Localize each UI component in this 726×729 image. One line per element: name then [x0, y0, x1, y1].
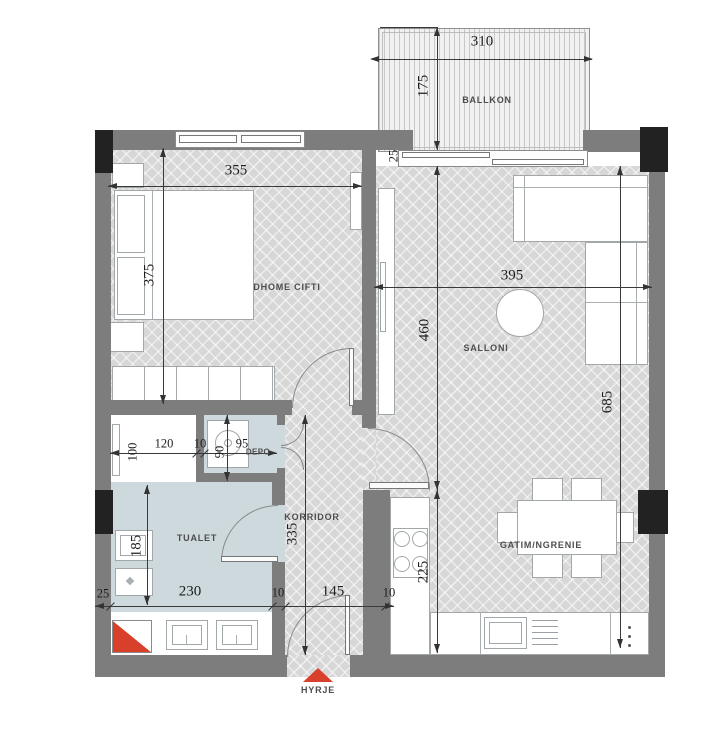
dim-arrow	[110, 450, 119, 456]
dim-arrow	[95, 603, 104, 609]
dim-bottom-gap2: 10	[383, 586, 396, 601]
dim-toilet-depth: 185	[129, 535, 146, 558]
dim-balcony-depth: 175	[416, 75, 433, 98]
sink-drainer	[532, 620, 558, 646]
dim-arrow	[370, 56, 379, 62]
dim-arrow	[434, 644, 440, 653]
dim-arrow	[302, 646, 308, 655]
dim-arrow	[434, 490, 440, 499]
wall-kitchen	[363, 490, 390, 655]
radiator-living	[380, 262, 386, 332]
dim-balcony-width: 310	[471, 34, 494, 51]
dim-living-depth: 460	[417, 319, 434, 342]
dim-bath-width: 120	[155, 437, 174, 452]
dim-arrow	[643, 284, 652, 290]
entrance-arrow-icon	[303, 668, 333, 682]
wall-balcony-stub-left	[370, 130, 413, 150]
sofa-back-line-top	[514, 187, 647, 188]
coffee-table	[496, 289, 544, 337]
dim-storage-depth: 90	[213, 446, 228, 459]
counter-divider	[610, 612, 611, 655]
shaft-marker	[112, 620, 152, 653]
dim-bottom-left: 25	[97, 587, 110, 602]
column-top-right	[640, 127, 668, 172]
burner	[412, 531, 428, 547]
vanity-basin-bowl	[222, 625, 252, 645]
dim-corridor-width: 145	[322, 584, 345, 601]
dim-arrow	[144, 596, 150, 605]
room-label-living: SALLONI	[463, 343, 508, 353]
dim-arrow	[108, 183, 117, 189]
dim-line-bottom-row	[95, 606, 394, 607]
dim-line-corridor-depth	[305, 415, 306, 655]
counter-divider	[480, 612, 481, 655]
dim-arrow	[353, 183, 362, 189]
bedroom-window-pane-right	[241, 135, 301, 143]
dim-line-balcony-depth	[437, 27, 438, 150]
dim-arrow	[160, 148, 166, 157]
dim-arrow	[224, 415, 230, 424]
wall-bottom-left	[95, 655, 287, 677]
dim-bath-depth: 100	[126, 443, 141, 462]
dim-line-balcony-width	[372, 59, 592, 60]
sofa-back-line-right	[636, 243, 637, 364]
sofa-right-section	[585, 242, 648, 365]
burner	[394, 556, 410, 572]
sofa-top-section	[513, 175, 648, 242]
burner	[394, 531, 410, 547]
room-label-storage: DEPO	[246, 448, 270, 457]
room-label-balcony: BALLKON	[462, 95, 512, 105]
dim-living-total-depth: 685	[600, 391, 617, 414]
appliance-dot	[628, 644, 631, 647]
nightstand-bottom	[110, 322, 144, 352]
dim-toilet-width: 230	[179, 584, 202, 601]
basin-tick	[186, 635, 187, 645]
dim-arrow	[224, 472, 230, 481]
dim-kitchen-depth: 225	[416, 561, 433, 584]
balcony-sliding-panel-right	[492, 159, 584, 165]
dim-arrow	[302, 415, 308, 424]
dim-bedroom-depth: 375	[142, 264, 159, 287]
floor-plan: 310 175 25 355 375 395 460 225 685 100 1…	[0, 0, 726, 729]
dim-line-kitchen-depth	[437, 490, 438, 653]
appliance-dot	[628, 635, 631, 638]
dim-living-width: 395	[501, 268, 524, 285]
wall-bottom-right	[350, 655, 665, 677]
room-label-toilet: TUALET	[177, 533, 217, 543]
dim-arrow	[434, 481, 440, 490]
bedroom-window-pane-left	[179, 135, 237, 143]
wall-storage-jamb-bottom	[277, 468, 285, 482]
balcony-sliding-panel-left	[402, 152, 490, 158]
dim-arrow	[584, 56, 593, 62]
dim-arrow	[434, 141, 440, 150]
dim-arrow	[617, 639, 623, 648]
dim-balcony-offset: 25	[387, 150, 402, 163]
column-mid-right	[638, 490, 668, 534]
wall-storage-bottom	[196, 473, 285, 482]
column-mid-left	[95, 490, 113, 534]
sofa-armrest-line	[524, 176, 525, 241]
room-label-kitchen: GATIM/NGRENIE	[500, 540, 582, 550]
dim-line-living-depth	[437, 166, 438, 490]
appliance-dot	[628, 626, 631, 629]
dim-line-living-width	[374, 287, 652, 288]
bed-fold-line	[152, 191, 153, 319]
kitchen-sink-bowl	[489, 622, 522, 644]
dim-bedroom-width: 355	[225, 163, 248, 180]
dim-corridor-depth: 335	[285, 523, 302, 546]
column-top-left	[95, 130, 113, 173]
wall-toilet-corridor-a	[272, 482, 285, 505]
dim-ext-line	[380, 27, 437, 28]
dim-arrow	[160, 395, 166, 404]
dim-arrow	[617, 166, 623, 175]
dim-arrow	[374, 284, 383, 290]
wardrobe	[112, 366, 275, 404]
dim-arrow	[434, 27, 440, 36]
entrance-label: HYRJE	[301, 685, 335, 695]
entrance-door-leaf	[345, 595, 350, 655]
dim-bottom-gap1: 10	[272, 586, 285, 601]
tv-shelf	[350, 172, 362, 230]
dim-line-toilet-depth	[147, 485, 148, 605]
bed-pillow-top	[117, 195, 145, 253]
dim-line-living-total-depth	[620, 166, 621, 648]
basin-tick	[236, 635, 237, 645]
bedroom-door-leaf	[349, 348, 354, 406]
wall-right	[649, 127, 665, 677]
dim-bath-gap: 10	[194, 437, 207, 452]
room-label-corridor: KORRIDOR	[284, 512, 339, 522]
living-door-leaf	[369, 482, 429, 489]
dim-arrow	[144, 485, 150, 494]
vanity-basin-bowl	[172, 625, 202, 645]
dim-arrow	[434, 166, 440, 175]
toilet-door-leaf	[221, 556, 278, 562]
wall-bedroom-bath-a	[95, 400, 292, 415]
dim-line-bedroom-depth	[163, 148, 164, 404]
room-label-bedroom: DHOME CIFTI	[253, 282, 320, 292]
dim-line-bedroom-width	[108, 186, 362, 187]
sofa-seat-divider	[586, 302, 647, 303]
